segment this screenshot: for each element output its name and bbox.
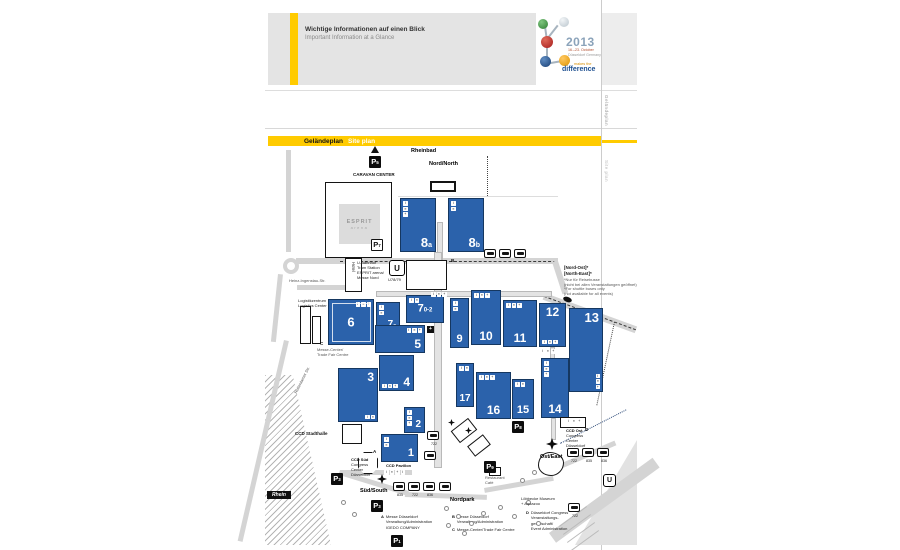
road <box>271 274 283 342</box>
north-entrance-building <box>406 260 447 290</box>
service-icon-strip: i≡+i <box>384 470 405 475</box>
map-label: CCD Stadthalle <box>295 431 328 437</box>
hall-4: 4i≡+ <box>379 355 414 391</box>
bus-route-number: 722 <box>407 493 423 497</box>
tree-icon <box>520 478 525 483</box>
margin-label-2: Site plan <box>604 160 609 182</box>
service-icon: + <box>395 470 400 475</box>
service-icon: i <box>407 410 412 415</box>
first-aid-icon: + <box>427 326 434 333</box>
esprit-arena-field: ESPRIT arena <box>339 204 380 244</box>
titlebar-de: Geländeplan <box>304 138 343 145</box>
hall-number: 8a <box>421 236 432 249</box>
hall-number: 15 <box>513 405 533 416</box>
service-icon: + <box>517 303 522 308</box>
legend-letter: D <box>526 510 529 515</box>
service-icon: ≡ <box>415 298 420 303</box>
tree-icon <box>462 531 467 536</box>
hall-9: 9i≡ <box>450 298 469 348</box>
service-icon: ≡ <box>379 311 384 316</box>
bus-stop-icon: 722 <box>408 482 420 491</box>
legend-letter: A <box>381 514 384 519</box>
logo-city: Düsseldorf Germany <box>568 53 601 57</box>
service-icon: ≡ <box>361 302 366 307</box>
bus-glyph <box>571 506 578 510</box>
divider-line <box>265 90 637 91</box>
service-icon: i <box>459 366 464 371</box>
hall-12: 12i≡+ <box>539 303 566 347</box>
bus-stop-icon: 836 <box>597 448 609 457</box>
service-building <box>451 418 478 443</box>
bus-glyph <box>411 485 418 489</box>
service-icon: ≡ <box>407 416 412 421</box>
bus-glyph <box>426 485 433 489</box>
parking-p3-icon: P3 <box>331 473 343 485</box>
map-label: Heinz-Ingenstau-Str. <box>289 278 325 283</box>
service-icon: i <box>453 301 458 306</box>
hall-number: 13 <box>585 311 599 324</box>
bus-route-number: 722 <box>426 442 442 446</box>
tree-icon <box>481 511 486 516</box>
service-icon: ≡ <box>572 419 577 424</box>
service-icon: i <box>407 328 412 333</box>
service-icon: ≡ <box>546 349 551 354</box>
service-icon: i <box>479 375 484 380</box>
tree-icon <box>536 521 541 526</box>
path-dotted <box>487 156 488 196</box>
rheinbad-building <box>430 181 456 192</box>
map-label: Messe-Center/ Trade Fair Centre <box>317 347 348 357</box>
service-icon: + <box>577 419 582 424</box>
north-arrow-icon <box>371 146 379 153</box>
service-icon: i <box>384 437 389 442</box>
hall-number: 14 <box>542 403 568 415</box>
map-label: Congress Center Düsseldorf <box>351 462 370 477</box>
hall-number: 70-2 <box>407 304 443 315</box>
section-titlebar: Geländeplan Site plan <box>268 136 601 146</box>
service-icon: ≡ <box>388 384 393 389</box>
service-icon: + <box>596 385 601 390</box>
bus-stop-icon: 835 <box>582 448 594 457</box>
bus-route-number: 722 <box>567 514 583 518</box>
service-icon: i <box>542 340 547 345</box>
tree-icon <box>341 500 346 505</box>
hall-13: 13i≡+ <box>569 308 603 392</box>
map-label: Logistikzentrum Logistics Center <box>298 298 327 308</box>
service-icon-strip: i≡+ <box>540 349 556 354</box>
service-icon-strip: i≡+ <box>431 292 447 297</box>
tree-icon <box>352 512 357 517</box>
road <box>286 150 291 252</box>
map-label: B <box>451 258 454 264</box>
margin-label-1: Geländeplan <box>604 95 609 126</box>
hall-16: 16i≡+ <box>476 372 511 419</box>
hall-8b: 8bi≡ <box>448 198 484 252</box>
service-icon-strip: i≡+ <box>566 419 582 424</box>
service-icon: ≡ <box>465 366 470 371</box>
u-bahn-station-icon: U <box>389 260 405 276</box>
k-2013-logo: 2013 16.–23. October Düsseldorf Germany … <box>536 13 601 85</box>
service-icon: ≡ <box>548 340 553 345</box>
bus-stop-icon: 722 <box>568 503 580 512</box>
parking-p9-icon: P9 <box>484 461 496 473</box>
map-label: Süd/South <box>360 488 388 495</box>
map-label: Nordpark <box>450 497 474 504</box>
logo-sphere-green <box>538 19 548 29</box>
fence-line <box>398 196 558 197</box>
map-label: Ost/East <box>540 454 562 461</box>
hall-number: 6 <box>329 316 373 329</box>
hall-15: 15i≡ <box>512 379 534 419</box>
hall-3: 3i≡ <box>338 368 378 422</box>
bus-route-number: 835 <box>581 459 597 463</box>
titlebar-en: Site plan <box>348 138 375 145</box>
titlebar-continuation <box>602 140 637 143</box>
hall-11: 11i≡+ <box>503 300 537 347</box>
map-label: Rotterdamer Str. <box>293 366 311 394</box>
hall-8a: 8ai≡+ <box>400 198 436 252</box>
legend-item-d: D Düsseldorf Congress Veranstaltungs- ge… <box>526 510 568 532</box>
service-icon: ≡ <box>371 415 376 420</box>
map-label: Restaurant Café <box>485 475 505 485</box>
service-icon: + <box>367 302 372 307</box>
legend-letter: C <box>452 527 455 532</box>
bus-stop-icon <box>499 249 511 258</box>
hall-1: 1i≡ <box>381 434 418 462</box>
bus-stop-icon: 722 <box>567 448 579 457</box>
tree-icon <box>532 470 537 475</box>
hall-17: 17i≡ <box>456 363 474 407</box>
service-icon: + <box>442 292 447 297</box>
tree-icon <box>469 521 474 526</box>
tree-icon <box>446 523 451 528</box>
service-icon: i <box>356 302 361 307</box>
logistics-building <box>300 306 311 344</box>
service-icon: + <box>393 384 398 389</box>
site-plan-page: Wichtige Informationen auf einen Blick I… <box>0 0 900 550</box>
hall-number: 4 <box>403 376 410 388</box>
tree-icon <box>498 505 503 510</box>
bus-route-number: 836 <box>596 459 612 463</box>
bus-stop-icon <box>424 451 436 460</box>
logo-tagline-2: difference <box>562 66 595 73</box>
divider-line <box>265 128 637 129</box>
service-icon: i <box>379 305 384 310</box>
hall-14: 14i≡+ <box>541 358 569 418</box>
tree-icon <box>444 506 449 511</box>
hall-6: 6i≡+ <box>328 299 374 345</box>
service-icon: ≡ <box>521 382 526 387</box>
parking-p1-icon: P1 <box>391 535 403 547</box>
map-label: U78/79 <box>388 277 401 282</box>
legend-text: Messe Düsseldorf Verwaltung/Administrati… <box>457 514 503 525</box>
bus-stop-icon <box>514 249 526 258</box>
logo-sphere-silver <box>559 17 569 27</box>
map-label: Löbbecke Museum + Aquazoo <box>521 496 555 506</box>
logo-dates: 16.–23. October <box>568 48 594 52</box>
hall-number: 12 <box>540 306 565 318</box>
map-label: CARAVAN CENTER <box>353 172 395 178</box>
service-icon: i <box>474 293 479 298</box>
north-corridor <box>376 291 552 297</box>
building-label: Hotel <box>351 262 356 272</box>
service-icon: i <box>596 374 601 379</box>
legend-letter: B <box>452 514 455 519</box>
ost-entrance-marker <box>546 438 558 450</box>
legend-text: Messe Düsseldorf Verwaltung/Administrati… <box>386 514 432 530</box>
parking-p5-icon: P5 <box>369 156 381 168</box>
service-icon: ≡ <box>403 207 408 212</box>
hall-number: 5 <box>414 338 421 350</box>
hall-number: 11 <box>504 332 536 344</box>
map-label: A <box>373 449 376 455</box>
hall-number: 2 <box>415 420 421 430</box>
service-icon: ≡ <box>437 292 442 297</box>
service-icon: + <box>485 293 490 298</box>
service-icon: ≡ <box>451 207 456 212</box>
bus-glyph <box>502 252 509 256</box>
bus-glyph <box>517 252 524 256</box>
bus-glyph <box>427 454 434 458</box>
service-icon: i <box>431 292 436 297</box>
hall-number: 17 <box>457 394 473 404</box>
road-marker <box>448 419 455 426</box>
hall-number: 8b <box>468 236 480 249</box>
hall-2: 2i≡+ <box>404 407 425 433</box>
service-icon: ≡ <box>544 367 549 372</box>
map-label: Congress Center Düsseldorf <box>566 433 585 448</box>
bus-stop-icon <box>484 249 496 258</box>
service-icon: ≡ <box>384 443 389 448</box>
service-icon: i <box>365 415 370 420</box>
service-icon: i <box>384 470 389 475</box>
service-icon: + <box>403 212 408 217</box>
service-building <box>467 434 491 457</box>
service-icon: ≡ <box>412 328 417 333</box>
service-icon: ≡ <box>512 303 517 308</box>
map-label: CCD Pavillon <box>386 463 411 468</box>
map-label: Nord/North <box>429 161 458 168</box>
sheet-fold-line <box>601 0 602 550</box>
ccd-stadthalle-building <box>342 424 362 444</box>
parking-p7-icon: P7 <box>371 239 383 251</box>
bus-glyph <box>570 451 577 455</box>
hall-number: 3 <box>367 371 374 383</box>
service-icon: i <box>566 419 571 424</box>
bus-glyph <box>600 451 607 455</box>
parking-p3-icon: P3 <box>371 500 383 512</box>
service-icon: + <box>553 340 558 345</box>
rhein-label-box: Rhein <box>267 491 291 499</box>
hall-702: 70-2i≡ <box>406 295 444 323</box>
logo-year: 2013 <box>566 35 595 49</box>
hall-number: 1 <box>408 448 414 459</box>
service-icon: i <box>506 303 511 308</box>
logo-sphere-blue <box>540 56 551 67</box>
map-label: D <box>585 427 588 433</box>
bus-stop-icon <box>439 482 451 491</box>
bus-glyph <box>585 451 592 455</box>
map-label: *For shuttle buses only (not available f… <box>564 286 613 296</box>
service-icon: ≡ <box>596 379 601 384</box>
corridor <box>551 418 556 440</box>
service-icon: i <box>403 201 408 206</box>
legend-item-a: A Messe Düsseldorf Verwaltung/Administra… <box>381 514 432 530</box>
map-label: [Nord-Ost]* [North-East]* <box>564 265 592 276</box>
map-label: C <box>320 341 323 347</box>
service-icon: i <box>409 298 414 303</box>
service-icon: + <box>490 375 495 380</box>
bus-glyph <box>487 252 494 256</box>
service-icon: + <box>418 328 423 333</box>
hall-10: 10i≡+ <box>471 290 501 345</box>
hall-number: 9 <box>451 334 468 345</box>
header-title-de: Wichtige Informationen auf einen Blick <box>305 26 425 33</box>
bus-stop-icon: 836 <box>423 482 435 491</box>
header-title-en: Important Information at a Glance <box>305 35 394 41</box>
bus-route-number: 836 <box>422 493 438 497</box>
map-label: U-Bahnhof Tram Station ESPRIT arena/ Mes… <box>357 260 384 280</box>
tree-icon <box>512 514 517 519</box>
parking-p8-icon: P8 <box>512 421 524 433</box>
tree-icon <box>456 514 461 519</box>
service-icon: ≡ <box>390 470 395 475</box>
hall-number: 16 <box>477 404 510 416</box>
logo-sphere-red <box>541 36 553 48</box>
service-icon: ≡ <box>453 307 458 312</box>
bus-route-number: 835 <box>392 493 408 497</box>
service-icon: + <box>407 421 412 426</box>
service-icon: i <box>382 384 387 389</box>
header-accent-stripe <box>290 13 298 85</box>
bus-glyph <box>430 434 437 438</box>
service-icon: i <box>540 349 545 354</box>
hall-number: 10 <box>472 330 500 342</box>
bus-glyph <box>396 485 403 489</box>
logistics-building <box>312 316 321 344</box>
service-icon: ≡ <box>480 293 485 298</box>
service-icon: ≡ <box>485 375 490 380</box>
bus-stop-icon: 835 <box>393 482 405 491</box>
hall-5: 5i≡+ <box>375 325 425 353</box>
service-icon: + <box>544 372 549 377</box>
service-icon: i <box>515 382 520 387</box>
service-icon: i <box>544 361 549 366</box>
service-icon: i <box>401 470 406 475</box>
esprit-arena-logo-sub: arena <box>351 225 369 230</box>
bus-route-number: 722 <box>566 459 582 463</box>
bus-glyph <box>442 485 449 489</box>
service-icon: i <box>451 201 456 206</box>
service-icon: + <box>551 349 556 354</box>
header-band-right <box>602 13 637 85</box>
bus-stop-icon: 722 <box>427 431 439 440</box>
u-bahn-station-icon: U <box>603 474 616 487</box>
map-label: Rheinbad <box>411 148 436 155</box>
